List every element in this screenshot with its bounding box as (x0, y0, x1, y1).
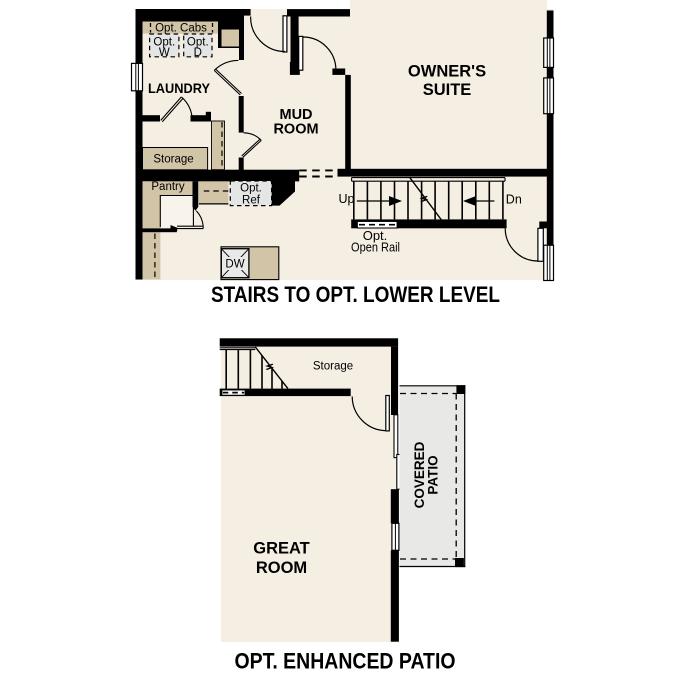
svg-text:ROOM: ROOM (273, 122, 318, 138)
svg-text:LAUNDRY: LAUNDRY (148, 80, 211, 96)
svg-text:STAIRS TO OPT. LOWER LEVEL: STAIRS TO OPT. LOWER LEVEL (211, 282, 500, 307)
svg-text:Open Rail: Open Rail (351, 240, 400, 255)
svg-text:Opt. Cabs: Opt. Cabs (155, 23, 207, 35)
svg-text:OWNER'S: OWNER'S (408, 63, 486, 81)
svg-text:SUITE: SUITE (423, 81, 472, 99)
svg-text:Storage: Storage (153, 154, 193, 166)
svg-text:Up: Up (339, 192, 355, 206)
svg-text:W: W (159, 47, 170, 59)
svg-text:OPT. ENHANCED PATIO: OPT. ENHANCED PATIO (235, 649, 456, 674)
svg-text:Ref: Ref (242, 195, 261, 207)
svg-text:Storage: Storage (313, 361, 353, 373)
svg-text:GREAT: GREAT (253, 540, 310, 558)
svg-text:Pantry: Pantry (151, 181, 184, 193)
svg-text:DW: DW (225, 259, 244, 271)
svg-text:Dn: Dn (506, 193, 522, 207)
svg-text:ROOM: ROOM (256, 559, 307, 577)
svg-text:Opt.: Opt. (240, 183, 262, 195)
svg-text:D: D (194, 47, 202, 59)
